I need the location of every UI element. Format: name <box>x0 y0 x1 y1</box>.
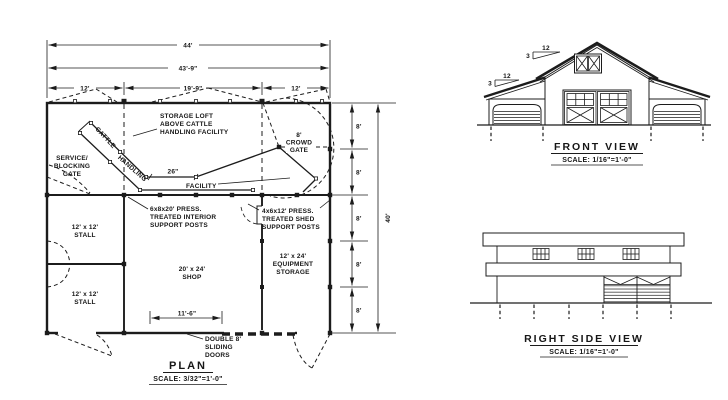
front-roof-pitch-main: 12 3 <box>526 45 560 60</box>
floor-plan: 44' 43'-9" 12' 19'-9" 12' <box>45 40 396 385</box>
service-gate-note: SERVICE/ <box>56 155 88 162</box>
dim-bay-depth-2: 8' <box>356 170 362 177</box>
plan-dimension-shop-door: 11'-6" <box>150 311 222 325</box>
front-left-bay <box>493 105 541 126</box>
dim-center-bay: 19'-9" <box>184 86 203 93</box>
svg-text:SLIDING: SLIDING <box>205 344 233 351</box>
dim-right-bay: 12' <box>291 86 301 93</box>
plan-dimensions-top: 44' 43'-9" 12' 19'-9" 12' <box>47 40 330 98</box>
front-left-shed <box>489 99 545 125</box>
svg-text:BLOCKING: BLOCKING <box>54 163 90 170</box>
stall-upper-label: 12' x 12' <box>72 224 99 231</box>
blueprint-sheet: 44' 43'-9" 12' 19'-9" 12' <box>0 0 728 400</box>
svg-text:ABOVE CATTLE: ABOVE CATTLE <box>160 121 213 128</box>
svg-text:HANDLING FACILITY: HANDLING FACILITY <box>160 129 229 136</box>
front-right-shed-roof <box>649 78 710 98</box>
svg-text:SUPPORT POSTS: SUPPORT POSTS <box>150 222 208 229</box>
svg-text:TREATED SHED: TREATED SHED <box>262 216 315 223</box>
plan-scale: SCALE: 3/32"=1'-0" <box>153 376 223 383</box>
dim-bay-depth-3: 8' <box>356 216 362 223</box>
dim-shop-door: 11'-6" <box>178 311 196 318</box>
chute-label-handling: HANDLING <box>116 154 148 183</box>
storage-loft-note: STORAGE LOFT <box>160 113 213 120</box>
plan-title: PLAN <box>169 360 207 372</box>
front-loft-window <box>575 54 602 73</box>
side-upper-roof-band <box>483 233 684 246</box>
side-loft-vents <box>533 249 639 260</box>
front-view-scale: SCALE: 1/16"=1'-0" <box>562 157 632 164</box>
svg-text:EQUIPMENT: EQUIPMENT <box>273 261 313 268</box>
svg-text:SHOP: SHOP <box>182 274 202 281</box>
stall-lower-label: 12' x 12' <box>72 291 99 298</box>
svg-text:DOORS: DOORS <box>205 352 230 359</box>
plan-title-block: PLAN SCALE: 3/32"=1'-0" <box>149 360 227 385</box>
chute-label-cattle: CATTLE <box>94 126 117 150</box>
walk-door-swing <box>241 207 257 224</box>
front-right-shed <box>649 99 705 125</box>
dim-overall-depth: 40' <box>385 213 392 223</box>
front-post-footings <box>491 127 703 142</box>
side-lower-roof-band <box>486 263 681 276</box>
plan-annotations: STORAGE LOFT ABOVE CATTLE HANDLING FACIL… <box>54 113 330 359</box>
svg-text:SUPPORT POSTS: SUPPORT POSTS <box>262 224 320 231</box>
svg-text:GATE: GATE <box>63 171 82 178</box>
front-roof-pitch-shed: 12 3 <box>488 73 519 88</box>
side-post-footings <box>500 305 671 320</box>
equipment-storage-label: 12' x 24' <box>280 253 307 260</box>
front-double-doors <box>563 90 631 125</box>
front-view: 12 3 12 3 FRONT VIEW SCALE: 1/16"=1'-0" <box>477 43 711 165</box>
pitch-rise-shed: 3 <box>488 81 492 88</box>
plan-dimensions-right: 8' 8' 8' 8' 8' 40' <box>332 103 396 333</box>
dim-wall-length: 43'-9" <box>179 66 198 73</box>
side-view-scale: SCALE: 1/16"=1'-0" <box>549 349 619 356</box>
svg-text:TREATED INTERIOR: TREATED INTERIOR <box>150 214 216 221</box>
front-left-shed-roof <box>484 78 545 98</box>
stall-door-opening <box>58 330 96 336</box>
shed-posts-note: 4x6x12' PRESS. <box>262 208 314 215</box>
sliding-doors-note: DOUBLE 8' <box>205 336 241 343</box>
interior-posts-note: 6x8x20' PRESS. <box>150 206 202 213</box>
side-view-title-block: RIGHT SIDE VIEW SCALE: 1/16"=1'-0" <box>524 333 644 357</box>
dim-bay-depth-5: 8' <box>356 308 362 315</box>
right-side-view: RIGHT SIDE VIEW SCALE: 1/16"=1'-0" <box>470 233 712 357</box>
side-main-wall <box>497 276 604 303</box>
dim-overall-width: 44' <box>183 43 193 50</box>
chute-label-facility: FACILITY <box>186 183 217 190</box>
svg-text:GATE: GATE <box>290 147 309 154</box>
side-shed-bays <box>604 276 670 303</box>
dim-left-bay: 12' <box>80 86 90 93</box>
pitch-run-shed: 12 <box>503 73 511 80</box>
barn-plan-drawing: 44' 43'-9" 12' 19'-9" 12' <box>0 0 728 400</box>
dim-bay-depth-4: 8' <box>356 262 362 269</box>
crowd-gate-note: 8' <box>296 132 302 139</box>
shop-label: 20' x 24' <box>179 266 206 273</box>
front-view-title: FRONT VIEW <box>554 141 640 153</box>
storage-door-opening <box>297 330 328 336</box>
svg-text:STALL: STALL <box>74 299 95 306</box>
dim-chute-width: 26" <box>168 169 179 176</box>
svg-text:CROWD: CROWD <box>286 140 312 147</box>
pitch-rise-main: 3 <box>526 53 530 60</box>
dim-bay-depth-1: 8' <box>356 124 362 131</box>
front-view-title-block: FRONT VIEW SCALE: 1/16"=1'-0" <box>551 141 643 165</box>
side-view-title: RIGHT SIDE VIEW <box>524 333 644 345</box>
svg-text:STORAGE: STORAGE <box>276 269 310 276</box>
svg-text:STALL: STALL <box>74 232 95 239</box>
front-right-bay <box>653 105 701 126</box>
pitch-run-main: 12 <box>542 45 550 52</box>
